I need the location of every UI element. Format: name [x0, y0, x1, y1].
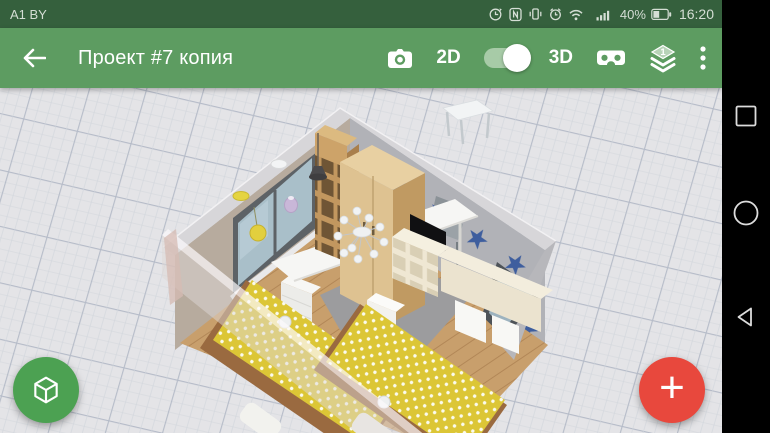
mode-2d-label[interactable]: 2D	[436, 47, 460, 69]
ceiling-lamp-yellow[interactable]	[233, 192, 249, 201]
cube-3d-icon	[30, 374, 62, 406]
alarm-icon	[548, 6, 563, 22]
recents-button[interactable]	[734, 104, 758, 131]
recents-square-icon	[734, 104, 758, 128]
status-bar: A1 BY	[0, 0, 722, 28]
vr-cardboard-icon	[596, 49, 626, 68]
back-nav-button[interactable]	[734, 305, 758, 332]
plus-icon: +	[659, 366, 685, 410]
phone-screen: A1 BY	[0, 0, 770, 433]
battery-percent: 40%	[620, 7, 646, 22]
clock: 16:20	[679, 6, 714, 22]
page-title: Проект #7 копия	[78, 47, 233, 70]
ceiling-lamp-white[interactable]	[271, 160, 287, 169]
view-mode-fab[interactable]	[13, 357, 79, 423]
android-nav-bar	[722, 0, 770, 433]
overflow-menu-icon	[700, 46, 706, 70]
status-bar-right: 40% 16:20	[488, 6, 714, 22]
home-button[interactable]	[732, 199, 760, 230]
toggle-knob	[503, 44, 531, 72]
home-circle-icon	[732, 199, 760, 227]
wifi-icon	[568, 8, 584, 21]
camera-icon	[387, 47, 413, 69]
mode-3d-label[interactable]: 3D	[549, 47, 573, 69]
overflow-menu-button[interactable]	[700, 46, 706, 70]
back-triangle-icon	[734, 305, 758, 329]
app-toolbar: Проект #7 копия 2D 3D	[0, 28, 722, 88]
add-object-fab[interactable]: +	[639, 357, 705, 423]
signal-strength-icon	[595, 8, 611, 21]
layers-badge: 1	[660, 47, 666, 58]
data-saver-icon	[488, 6, 503, 22]
back-button[interactable]	[22, 48, 46, 68]
toolbar-actions: 2D 3D 1	[387, 43, 706, 74]
layers-button[interactable]: 1	[649, 43, 677, 74]
vibrate-icon	[528, 6, 543, 22]
floor-plan-canvas[interactable]	[0, 88, 722, 433]
vr-mode-button[interactable]	[596, 49, 626, 68]
nfc-icon	[508, 6, 523, 22]
carrier-label: A1 BY	[10, 7, 47, 22]
layers-icon: 1	[649, 43, 677, 74]
battery-icon	[651, 8, 672, 21]
2d-3d-toggle[interactable]	[484, 48, 526, 68]
camera-button[interactable]	[387, 47, 413, 69]
scene-3d-view	[0, 88, 722, 433]
back-arrow-icon	[22, 48, 46, 68]
